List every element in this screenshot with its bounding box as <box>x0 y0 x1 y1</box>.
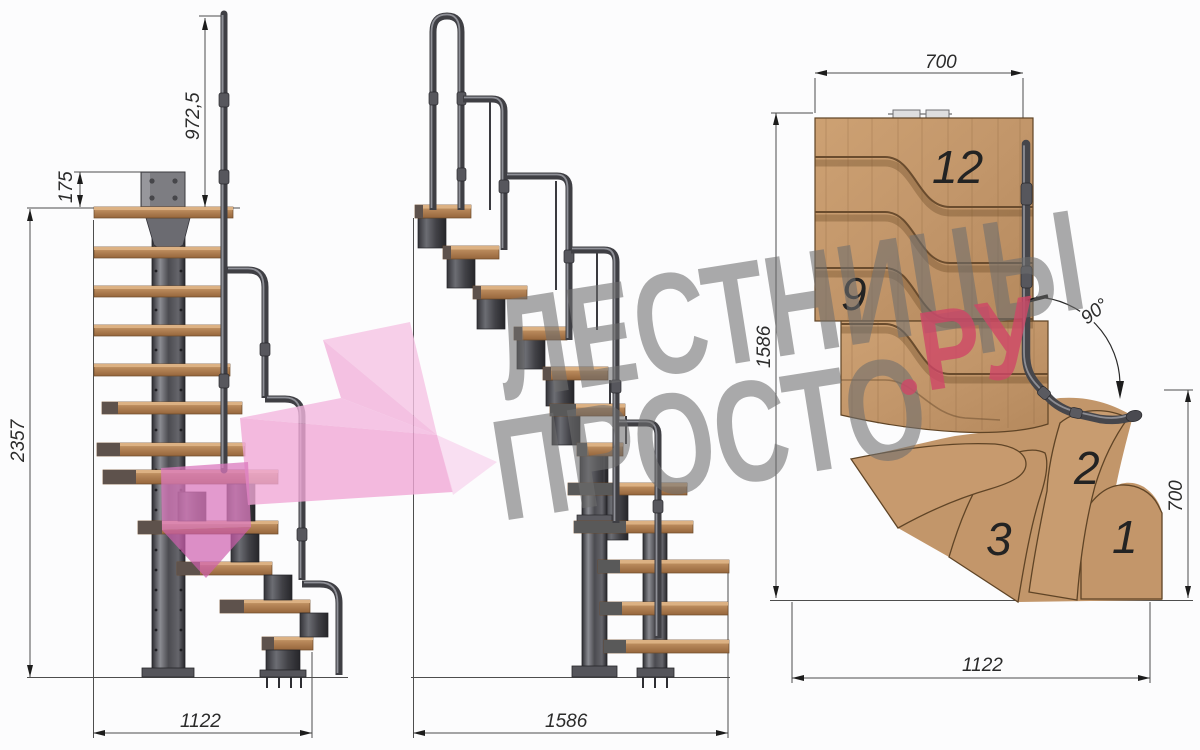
svg-text:2357: 2357 <box>8 418 29 463</box>
svg-text:1122: 1122 <box>962 655 1003 676</box>
svg-text:1122: 1122 <box>180 711 221 732</box>
svg-text:175: 175 <box>56 171 77 203</box>
svg-text:3: 3 <box>986 513 1012 565</box>
svg-text:1: 1 <box>1112 511 1138 563</box>
svg-text:972,5: 972,5 <box>183 92 204 140</box>
svg-text:1586: 1586 <box>545 711 588 732</box>
svg-text:РУ: РУ <box>910 272 1048 415</box>
svg-text:700: 700 <box>1166 480 1187 512</box>
svg-text:700: 700 <box>925 52 957 73</box>
svg-text:2: 2 <box>1073 442 1100 494</box>
svg-text:12: 12 <box>932 141 983 193</box>
